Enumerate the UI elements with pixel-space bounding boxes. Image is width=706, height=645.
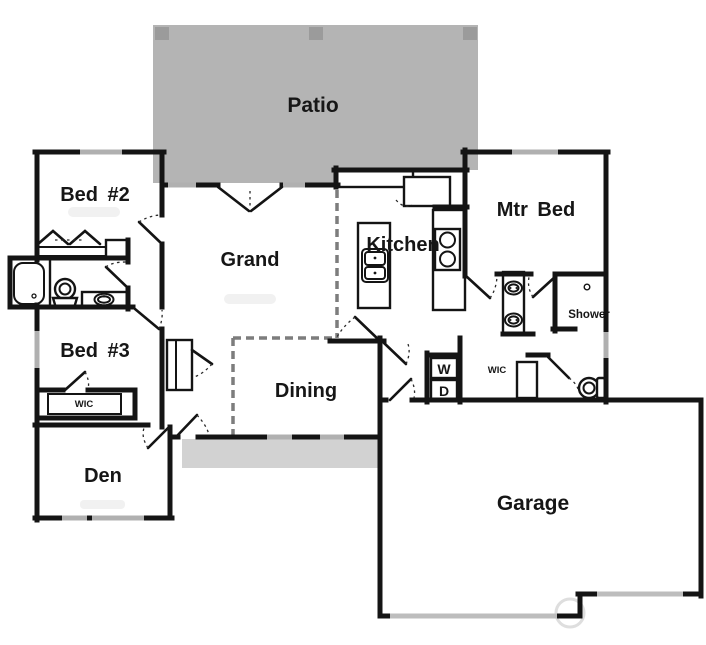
window (62, 516, 87, 521)
toilet-icon (579, 378, 605, 398)
refrigerator-icon (404, 177, 450, 206)
room-label-grand: Grand (221, 249, 280, 271)
door-swing (197, 415, 209, 435)
door-swing (490, 277, 497, 298)
window (80, 150, 122, 155)
mtr-suite-door-leaf (466, 276, 490, 298)
den-door-leaf (148, 426, 170, 448)
room-label-den: Den (84, 465, 122, 487)
room-label-patio: Patio (287, 94, 338, 117)
faucet-dot (510, 319, 512, 321)
room-label-wic-master: WIC (488, 365, 507, 376)
window (604, 332, 609, 358)
floor-plan-canvas: Patio Bed #2 Grand Kitchen Mtr Bed Bed #… (0, 0, 706, 645)
hall-builtin (167, 340, 212, 390)
garage-door-opening (390, 614, 557, 619)
patio-post-icon (309, 27, 323, 40)
window (92, 516, 144, 521)
door-swing (529, 277, 534, 297)
toilet-icon (53, 279, 77, 308)
dryer-label: D (439, 383, 449, 399)
door-swing (406, 344, 409, 364)
door-swing (106, 262, 126, 267)
window (35, 331, 40, 368)
floor-plan: Patio Bed #2 Grand Kitchen Mtr Bed Bed #… (0, 0, 706, 645)
faucet-dot (516, 287, 518, 289)
room-label-shower: Shower (568, 309, 610, 321)
door-leaf (65, 372, 85, 390)
window (168, 183, 196, 188)
room-label-bed2: Bed #2 (60, 184, 130, 206)
faded-mark (68, 207, 120, 217)
closet-cabinet (106, 240, 128, 257)
patio-french-door-leaf (251, 187, 282, 211)
bath1-fixtures (10, 258, 128, 308)
room-label-mtrbed: Mtr Bed (497, 199, 575, 221)
toilet-door-leaf (548, 357, 569, 378)
bifold-door-icon (70, 231, 100, 244)
patio-post-icon (155, 27, 169, 40)
door-swing (143, 428, 148, 448)
linen-closet (517, 362, 537, 398)
room-label-garage: Garage (497, 492, 569, 515)
door-leaf (192, 350, 212, 364)
door-swing (569, 378, 578, 389)
bed2-door-leaf (139, 222, 162, 244)
master-bath-walls (503, 334, 548, 355)
faded-marks (68, 207, 584, 627)
front-door-leaf (176, 415, 197, 437)
faucet-dot (510, 287, 512, 289)
built-in-closet (167, 340, 192, 390)
bath1-door-leaf (106, 267, 128, 288)
shower-drain-icon (584, 284, 590, 290)
door-swing (194, 364, 212, 377)
room-label-dining: Dining (275, 380, 337, 402)
room-label-kitchen: Kitchen (366, 234, 439, 256)
bed3-wic (37, 372, 135, 418)
hall-door-leaf (355, 317, 380, 341)
garage-entry-door-leaf (390, 379, 411, 400)
window (512, 150, 558, 155)
entry-door-leaf (384, 343, 406, 364)
door-swing (139, 215, 162, 222)
bed2-closet (37, 231, 128, 257)
room-label-wic-bed3: WIC (75, 399, 94, 410)
faded-mark (80, 500, 125, 509)
door-swing (411, 379, 415, 398)
door-swing (85, 372, 89, 389)
patio-post-icon (463, 27, 477, 40)
closet-shelf (37, 247, 106, 256)
kitchen-counter (337, 170, 413, 187)
door-swing (336, 317, 355, 339)
faucet-dot (516, 319, 518, 321)
patio-french-door-leaf (218, 187, 249, 211)
window (267, 435, 292, 440)
window (320, 435, 344, 440)
window (283, 183, 305, 188)
door-swing (159, 310, 162, 329)
toilet-bowl (55, 279, 75, 299)
bifold-door-icon (38, 231, 68, 244)
bed3-door-leaf (135, 309, 159, 329)
sink-drain (374, 272, 377, 275)
room-label-bed3: Bed #3 (60, 340, 130, 362)
faucet-dot (103, 295, 105, 297)
washer-label: W (437, 361, 451, 377)
shower-walls (553, 274, 575, 331)
faded-mark (224, 294, 276, 304)
front-porch-slab (182, 439, 378, 468)
patio-slab-extension (153, 168, 337, 183)
garage-door-opening (597, 592, 683, 597)
sink-drain (374, 257, 377, 260)
